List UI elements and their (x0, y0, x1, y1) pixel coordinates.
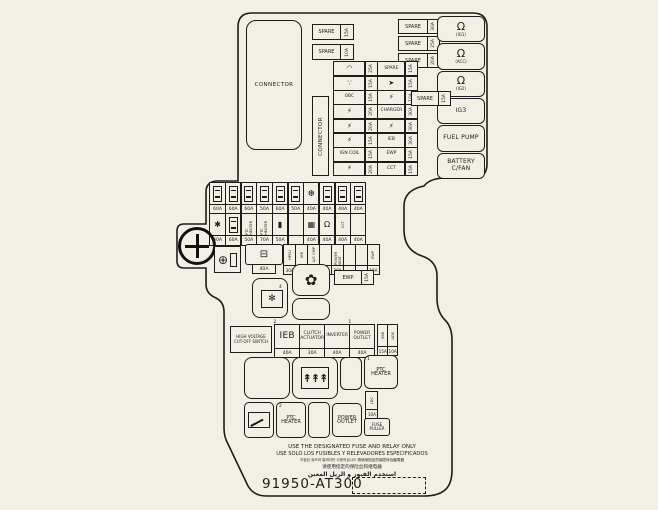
fuse-box-diagram-page: { "colors": {"background": "#f2efe4", "l… (0, 0, 658, 510)
midi-fuse: 40A (319, 182, 335, 215)
ac-compressor-icon: ✻ (268, 294, 276, 304)
star-icon: ✱ (214, 221, 221, 229)
midi-fuse: 50A (256, 182, 272, 215)
empty-slot-box (340, 357, 362, 390)
charger-plug-icon: ⚡ (389, 123, 394, 130)
empty-slot-box (292, 298, 330, 320)
vertical-fuse: SSB 15A (377, 324, 388, 356)
fuse-grid-row: ⚡ 20A CHARGER 30A (334, 105, 418, 119)
named-fuse: 2 IEB 40A (274, 324, 300, 358)
spare-fuse-mid: SPARE 15A (411, 91, 451, 106)
midi-fuse: Ω 40A (319, 213, 335, 246)
terminal-plus-icon: ⊕ (218, 254, 228, 266)
rear-window-box (244, 402, 274, 438)
midi-fuse: 40A (350, 213, 366, 246)
rear-window-icon (248, 412, 270, 428)
midi-fuse: 60A (225, 182, 241, 215)
midi-fuse: 60A (241, 182, 257, 215)
washer-icon: ∵ (347, 80, 351, 87)
relay-slot: FUEL PUMP FUEL PUMP (437, 125, 485, 151)
midi-fuse: PTC HEATER 70A (256, 213, 272, 246)
fuse-symbol-icon (276, 186, 285, 202)
heater-box: ↟↟↟ (292, 357, 338, 399)
midi-fuse: 60A (272, 182, 288, 215)
relay-coil-icon: Ω (457, 22, 465, 32)
barcode-box (352, 477, 426, 494)
midi-fuse: ▦ 40A (303, 213, 319, 246)
high-voltage-cutoff-switch-box: HIGH VOLTAGE CUT-OFF SWITCH (230, 326, 272, 353)
fuse-symbol-icon (338, 186, 347, 202)
midi-fuse: 60A (209, 182, 225, 215)
ac-compressor-box: ✻ 4 (252, 278, 288, 318)
midi-fuse: 40A (350, 182, 366, 215)
fuse-symbol-icon (260, 186, 269, 202)
named-fuse: 1 POWER OUTLET 40A (349, 324, 375, 358)
wiper-icon: ◠ (346, 65, 352, 72)
midi-fuse-row-a: 60A 60A 60A 50A 60A 50A (210, 182, 366, 215)
warning-line-en: USE THE DESIGNATED FUSE AND RELAY ONLY (248, 444, 456, 450)
fuse-symbol-icon (213, 186, 222, 202)
snowflake-icon: ❆ (308, 190, 315, 198)
charger-plug-icon: ⚡ (347, 108, 352, 115)
fuse-symbol-icon (291, 186, 300, 202)
charger-plug-icon: ⚡ (347, 165, 352, 172)
relay-slot: Ω (ACC) (ACC) (437, 43, 485, 69)
midi-fuse: CCT 40A (335, 213, 351, 246)
warning-line-es: USE SOLO LOS FUSIBLES Y RELEVADORES ESPE… (248, 451, 456, 457)
cooling-fan-box: ✿ (292, 264, 330, 296)
fuse-symbol-icon (354, 186, 363, 202)
midi-fuse: ❆ 40A (303, 182, 319, 215)
fuse-grid-row: IGN COIL 15A EWP 15A (334, 148, 418, 162)
fuse-puller-box: FUSE PULLER (364, 418, 390, 436)
spare-fuse-group-left: SPARE 15A SPARE 10A (312, 24, 354, 64)
relay-coil-icon: Ω (457, 76, 465, 86)
connector-box: CONNECTOR (246, 20, 302, 150)
fuse-symbol-icon (244, 186, 253, 202)
fuse-grid-row: ⚡ 15A IEB 30A (334, 133, 418, 147)
fuse-grid: ◠ 25A SPARE 15A ∵ 15A ➤ 15A OBC 15A ⚡ 10… (334, 62, 418, 176)
battery-icon: ⊟ (260, 249, 268, 260)
named-fuse: CLUTCH ACTUATOR 30A (299, 324, 325, 358)
ewp-fuse: EWP 15A (334, 270, 374, 285)
named-fuse-row: 2 IEB 40A CLUTCH ACTUATOR 30A INVERTER 4… (275, 324, 375, 358)
power-outlet-box: POWER OUTLET (332, 403, 362, 437)
fuse-symbol-icon (229, 186, 238, 202)
battery-fuse: ⊟ 40A (245, 244, 281, 274)
ldc-fuse: LDC 10A (365, 391, 378, 419)
empty-slot-box (244, 357, 290, 399)
midi-fuse: ▮ 50A (272, 213, 288, 246)
fuse-grid-row: OBC 15A ⚡ 10A (334, 91, 418, 105)
small-fuse-pair: SSB 15A ADS 10A (378, 324, 398, 356)
empty-slot-box (308, 402, 330, 438)
spare-fuse: SPARE 10A (312, 44, 354, 60)
fuse-grid-row: ◠ 25A SPARE 15A (334, 62, 418, 76)
cooling-fan-icon: ✿ (305, 271, 318, 289)
midi-fuse: 40A (335, 182, 351, 215)
spare-fuse: SPARE 15A (312, 24, 354, 40)
heater-element-icon: ↟↟↟ (301, 367, 329, 389)
mini-fuse-icon (230, 253, 237, 267)
relay-slot: BATTERY C/FAN BATTERY C/FAN (437, 153, 485, 179)
aux-terminal-box: ⊕ (214, 246, 241, 273)
charger-plug-icon: ⚡ (347, 123, 352, 130)
grid-icon: ▦ (308, 221, 316, 229)
midi-fuse: 50A (288, 182, 304, 215)
warning-line-kr: 지정된 퓨즈와 릴레이만 사용하십시오 請使用指定的保險絲及繼電器 (248, 458, 456, 463)
connector-vertical-box: CONNECTOR (312, 96, 329, 176)
connector-vertical-label: CONNECTOR (318, 117, 324, 156)
spare-fuse: SPARE 30A (398, 19, 440, 34)
relay-slot: Ω (IG1) (IG1) (437, 16, 485, 42)
fuse-grid-row: ⚡ 20A CCT 15A (334, 162, 418, 176)
midi-fuse: PTC HEATER 50A (241, 213, 257, 246)
ptc-heater-box-1: 1 PTC HEATER (364, 355, 398, 389)
part-number: 91950-AT300 (262, 476, 363, 492)
charger-plug-icon: ⚡ (347, 137, 352, 144)
warning-line-cn: 请使用指定的保险丝和继电器 (248, 464, 456, 470)
fuse-symbol-icon (323, 186, 332, 202)
relay-coil-icon: Ω (457, 49, 465, 59)
fuse-grid-row: ⚡ 20A ⚡ 30A (334, 119, 418, 133)
ptc-heater-box-2: 2 PTC HEATER (276, 402, 306, 438)
plug-icon: ▮ (278, 221, 282, 229)
charger-plug-icon: ⚡ (389, 94, 394, 101)
named-fuse: INVERTER 40A (324, 324, 350, 358)
spare-fuse: SPARE 25A (398, 36, 440, 51)
fuse-grid-row: ∵ 15A ➤ 15A (334, 76, 418, 90)
midi-fuse-row-b: ✱ 60A 60A PTC HEATER 50A PTC HEATER 70A … (210, 213, 366, 246)
jump-start-terminal-icon (178, 227, 216, 265)
horn-icon: ➤ (388, 80, 394, 87)
midi-fuse (288, 213, 304, 246)
connector-label: CONNECTOR (255, 82, 294, 88)
relay-coil-icon: Ω (324, 221, 330, 229)
warning-text-block: USE THE DESIGNATED FUSE AND RELAY ONLY U… (248, 444, 456, 478)
vertical-fuse: ADS 10A (387, 324, 398, 356)
fuse-symbol-icon (229, 217, 238, 233)
midi-fuse: 60A (225, 213, 241, 246)
